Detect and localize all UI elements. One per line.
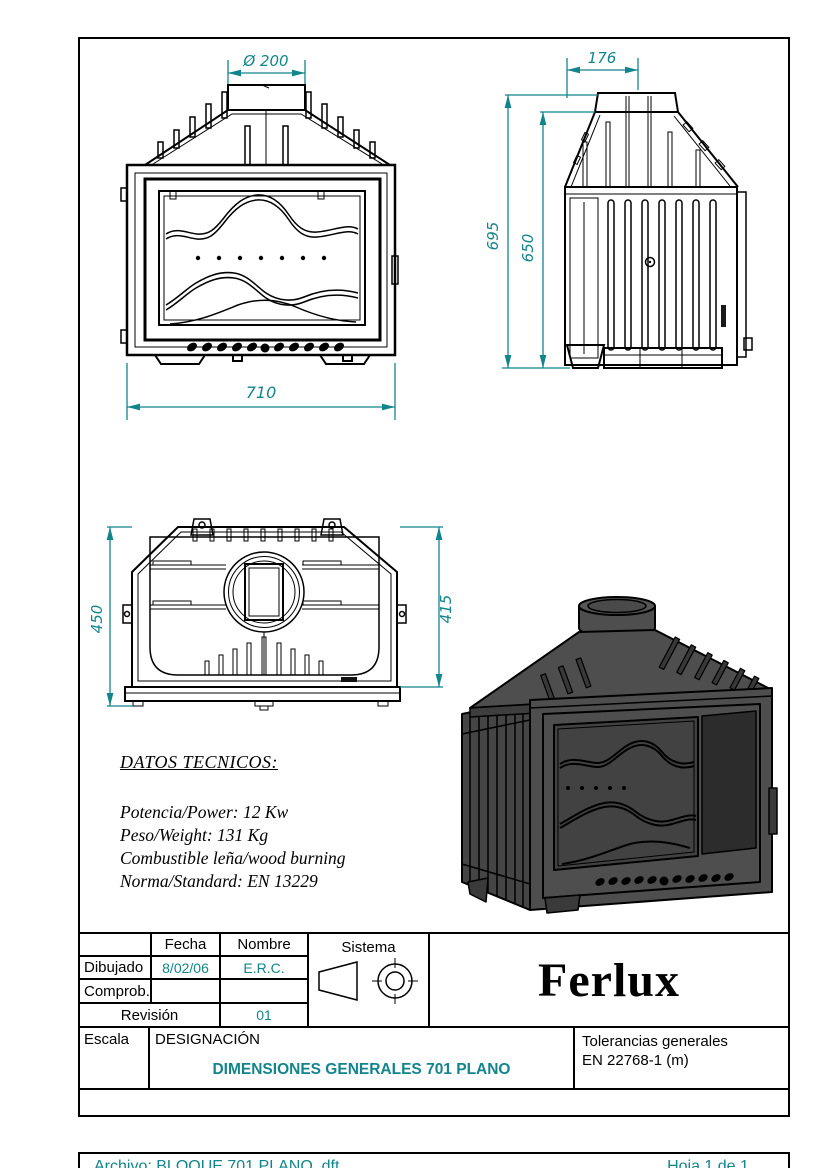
tech-spec-power: Potencia/Power: 12 Kw	[120, 801, 450, 824]
row-label-revision: Revisión	[78, 1002, 221, 1028]
col-header-nombre: Nombre	[219, 932, 309, 957]
front-flue-dim-label: Ø 200	[242, 52, 288, 70]
brand-logo-mark	[261, 344, 270, 353]
dibujado-nombre-value: E.R.C.	[219, 955, 309, 980]
row-label-dibujado: Dibujado	[78, 955, 152, 980]
base-plate	[125, 687, 400, 710]
flue-collar	[228, 85, 305, 110]
archivo-filename: Archivo: BLOQUE 701 PLANO .dft	[94, 1158, 339, 1168]
archivo-row: Archivo: BLOQUE 701 PLANO .dft Hoja 1 de…	[78, 1152, 790, 1168]
escala-cell: Escala	[78, 1026, 150, 1090]
tech-specs-title: DATOS TECNICOS:	[120, 752, 450, 773]
cell-blank	[78, 932, 152, 957]
top-body	[123, 519, 406, 710]
side-depth-dimension: 176	[567, 49, 638, 98]
brand-logo-cell: Ferlux	[428, 932, 790, 1028]
brand-name: Ferlux	[538, 953, 680, 1008]
tech-spec-weight: Peso/Weight: 131 Kg	[120, 824, 450, 847]
front-view: Ø 200	[95, 42, 465, 432]
tech-specs: DATOS TECNICOS: Potencia/Power: 12 Kw Pe…	[120, 752, 450, 893]
front-width-dim-label: 710	[246, 383, 277, 402]
row-label-comprob: Comprob.	[78, 978, 152, 1004]
front-flue-dimension: Ø 200	[228, 52, 305, 94]
side-height-695-label: 695	[484, 222, 502, 251]
sistema-label: Sistema	[341, 939, 395, 956]
render-left-side	[462, 700, 530, 910]
tolerancias-line1: Tolerancias generales	[582, 1033, 728, 1052]
perspective-view	[450, 592, 795, 922]
projection-symbol-icon	[309, 956, 428, 1018]
comprob-fecha-value	[150, 978, 221, 1004]
front-width-dimension: 710	[127, 363, 395, 420]
top-depth-415-dimension: 415	[400, 527, 455, 687]
top-view: 450 415	[95, 515, 475, 715]
designacion-label: DESIGNACIÓN	[155, 1031, 260, 1048]
top-depth-450-label: 450	[88, 605, 106, 634]
side-height-695-dimension: 695	[484, 95, 598, 368]
escala-label: Escala	[80, 1028, 129, 1048]
tech-spec-fuel: Combustible leña/wood burning	[120, 847, 450, 870]
drawing-sheet: Ø 200	[0, 0, 826, 1168]
front-feet	[155, 355, 370, 364]
side-body	[565, 187, 752, 368]
dibujado-fecha-value: 8/02/06	[150, 955, 221, 980]
tech-spec-standard: Norma/Standard: EN 13229	[120, 870, 450, 893]
flue-opening-top	[224, 552, 304, 675]
front-hood	[145, 92, 390, 165]
comprob-nombre-value	[219, 978, 309, 1004]
render-glass	[554, 717, 698, 870]
side-height-650-label: 650	[519, 234, 537, 263]
render-front-face	[530, 688, 777, 910]
render-side-panel	[702, 711, 756, 854]
firebox-front	[121, 165, 398, 364]
tolerancias-line2: EN 22768-1 (m)	[582, 1052, 689, 1071]
tolerancias-cell: Tolerancias generales EN 22768-1 (m)	[573, 1026, 790, 1090]
glass-dots	[196, 256, 326, 260]
sheet-number: Hoja 1 de 1	[628, 1158, 788, 1168]
side-hood	[565, 93, 738, 187]
side-depth-dim-label: 176	[588, 49, 617, 67]
col-header-fecha: Fecha	[150, 932, 221, 957]
designacion-value: DIMENSIONES GENERALES 701 PLANO	[150, 1061, 573, 1079]
designacion-cell: DESIGNACIÓN DIMENSIONES GENERALES 701 PL…	[148, 1026, 575, 1090]
side-view: 176	[478, 40, 788, 385]
revision-value: 01	[219, 1002, 309, 1028]
sistema-cell: Sistema	[307, 932, 430, 1028]
render-handle	[769, 788, 777, 834]
